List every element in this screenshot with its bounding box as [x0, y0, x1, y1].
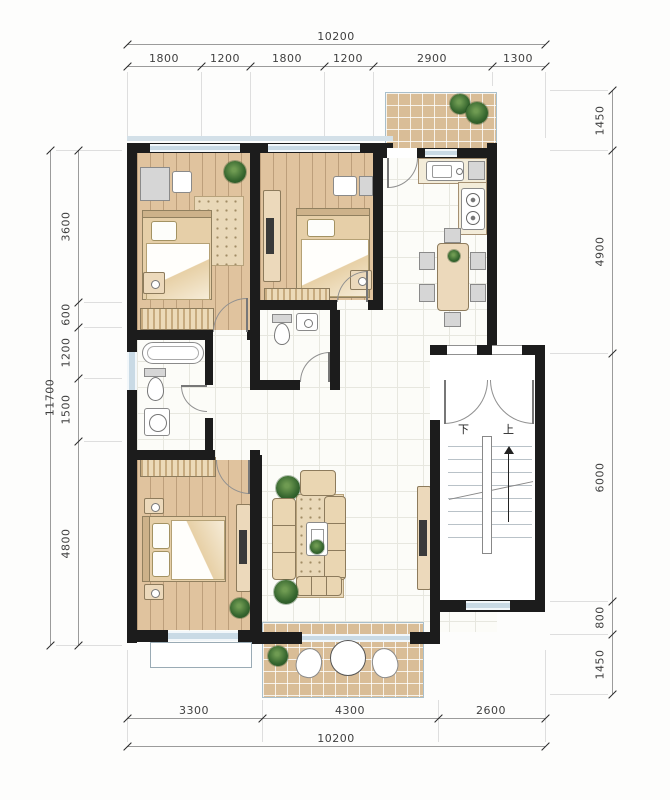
- wardrobe: [140, 308, 214, 330]
- entry-door-leaf: [532, 380, 534, 424]
- dim-right-seg: 1450: [594, 645, 607, 685]
- pillow: [151, 221, 177, 241]
- pillow: [152, 551, 170, 577]
- wall: [205, 340, 213, 385]
- extension-line: [262, 700, 263, 742]
- dim-left-seg: 3600: [60, 207, 73, 247]
- dim-right-seg: 4900: [594, 232, 607, 272]
- tv: [266, 218, 274, 254]
- dim-line-top-total: [127, 44, 545, 45]
- dim-bottom-seg: 4300: [330, 704, 370, 717]
- toilet: [274, 323, 290, 345]
- door-leaf: [387, 158, 389, 188]
- dim-line-bottom-segments: [127, 718, 545, 719]
- nightstand: [144, 584, 164, 600]
- dim-bottom-seg: 2600: [471, 704, 511, 717]
- dim-top-seg: 2900: [412, 52, 452, 65]
- extension-line: [324, 72, 325, 138]
- dining-chair: [470, 284, 486, 302]
- extension-line: [201, 72, 202, 138]
- kitchen-sink: [426, 161, 464, 181]
- extension-line: [550, 150, 608, 151]
- wall: [260, 300, 337, 310]
- stair-rail: [482, 436, 492, 554]
- bathtub: [142, 342, 204, 364]
- extension-line: [550, 694, 608, 695]
- dim-bottom-total: 10200: [316, 732, 356, 745]
- dim-top-seg: 1800: [267, 52, 307, 65]
- headboard: [143, 211, 211, 218]
- toilet: [147, 377, 164, 401]
- extension-line: [492, 72, 493, 86]
- dim-top-seg: 1200: [328, 52, 368, 65]
- dim-top-seg: 1300: [498, 52, 538, 65]
- toilet-tank: [144, 368, 166, 377]
- door-gap: [387, 148, 417, 158]
- extension-line: [84, 441, 122, 442]
- extension-line: [127, 72, 128, 138]
- dim-left-seg: 1200: [60, 333, 73, 373]
- armchair: [300, 470, 336, 496]
- toilet-tank: [272, 314, 292, 323]
- plant: [230, 598, 250, 618]
- floor-plan: 10200 1800 1200 1800 1200 2900 1300 1170…: [0, 0, 670, 800]
- desk: [140, 167, 170, 201]
- extension-line: [56, 150, 122, 151]
- window: [127, 352, 137, 390]
- top-exterior-edge: [127, 136, 393, 141]
- extension-line: [550, 90, 608, 91]
- wall: [368, 300, 383, 310]
- wall-unit: [333, 176, 357, 196]
- tv: [239, 530, 247, 564]
- washing-machine: [144, 408, 170, 436]
- plant: [274, 580, 298, 604]
- pillow: [152, 523, 170, 549]
- wall: [250, 380, 300, 390]
- dim-line-bottom-total: [127, 746, 545, 747]
- wall: [250, 450, 260, 460]
- extension-line: [56, 645, 122, 646]
- room-balcony-master: [150, 642, 252, 668]
- dim-line-top-segments: [127, 66, 545, 67]
- sofa: [272, 498, 296, 580]
- wall-opening: [447, 345, 477, 355]
- extension-line: [438, 700, 439, 742]
- dim-right-seg: 800: [594, 598, 607, 638]
- wall: [247, 330, 260, 340]
- terrace-threshold: [302, 634, 410, 642]
- extension-line: [373, 72, 374, 138]
- duvet: [171, 520, 225, 580]
- dining-chair: [470, 252, 486, 270]
- plant: [276, 476, 300, 500]
- table-centerpiece: [448, 250, 460, 262]
- sofa: [296, 576, 342, 596]
- wall: [127, 630, 168, 642]
- dining-chair: [444, 312, 461, 327]
- door-leaf: [181, 385, 207, 387]
- extension-line: [127, 650, 128, 742]
- extension-line: [545, 72, 546, 138]
- dim-top-seg: 1200: [205, 52, 245, 65]
- entry-door-leaf: [444, 380, 446, 424]
- stair-down-label: 下: [458, 424, 469, 436]
- extension-line: [84, 302, 122, 303]
- plant: [310, 540, 324, 554]
- wall: [535, 355, 545, 612]
- appliance: [468, 161, 485, 180]
- door-leaf: [328, 352, 330, 382]
- wall: [250, 455, 262, 642]
- stair-arrow-line: [508, 452, 509, 522]
- wall: [330, 380, 340, 390]
- pillow: [307, 219, 335, 237]
- wall: [410, 632, 440, 644]
- headboard: [297, 209, 369, 216]
- dining-chair: [419, 252, 435, 270]
- extension-line: [84, 327, 122, 328]
- dim-line-right: [612, 90, 613, 694]
- dim-right-seg: 6000: [594, 458, 607, 498]
- extension-line: [545, 650, 546, 742]
- nightstand: [144, 498, 164, 514]
- chair: [172, 171, 192, 193]
- window: [268, 144, 360, 152]
- window: [168, 631, 238, 641]
- wall: [127, 143, 137, 643]
- extension-line: [550, 353, 608, 354]
- dim-left-seg: 600: [60, 295, 73, 335]
- stair-up-label: 上: [503, 424, 514, 436]
- wall: [487, 143, 497, 355]
- extension-line: [250, 72, 251, 138]
- terrace-table: [330, 640, 366, 676]
- plant: [224, 161, 246, 183]
- plant: [466, 102, 488, 124]
- dim-top-total: 10200: [316, 30, 356, 43]
- plant: [268, 646, 288, 666]
- window: [466, 601, 510, 610]
- double-bed: [142, 516, 226, 582]
- wall: [250, 153, 260, 390]
- headboard: [143, 517, 150, 581]
- stove: [461, 188, 485, 230]
- stair-arrow-head: [504, 446, 514, 454]
- dining-chair: [419, 284, 435, 302]
- dim-left-seg: 4800: [60, 524, 73, 564]
- dim-left-total: 11700: [44, 378, 57, 418]
- dim-line-left-segments: [78, 150, 79, 645]
- window: [425, 149, 457, 157]
- door-leaf: [248, 460, 250, 494]
- door-leaf: [366, 271, 368, 302]
- wall: [127, 450, 215, 460]
- dining-chair: [444, 228, 461, 243]
- wall: [373, 143, 383, 310]
- nightstand: [143, 272, 165, 294]
- cabinet: [359, 176, 373, 196]
- tv: [419, 520, 427, 556]
- dim-right-seg: 1450: [594, 101, 607, 141]
- door-leaf: [246, 298, 248, 332]
- dim-bottom-seg: 3300: [174, 704, 214, 717]
- sink: [296, 313, 318, 331]
- wall: [127, 330, 213, 340]
- wardrobe: [140, 457, 216, 477]
- extension-line: [84, 378, 122, 379]
- wall: [238, 630, 260, 642]
- wall: [330, 310, 340, 390]
- window: [150, 144, 240, 152]
- dim-left-seg: 1500: [60, 390, 73, 430]
- wall-opening: [492, 345, 522, 355]
- dim-top-seg: 1800: [144, 52, 184, 65]
